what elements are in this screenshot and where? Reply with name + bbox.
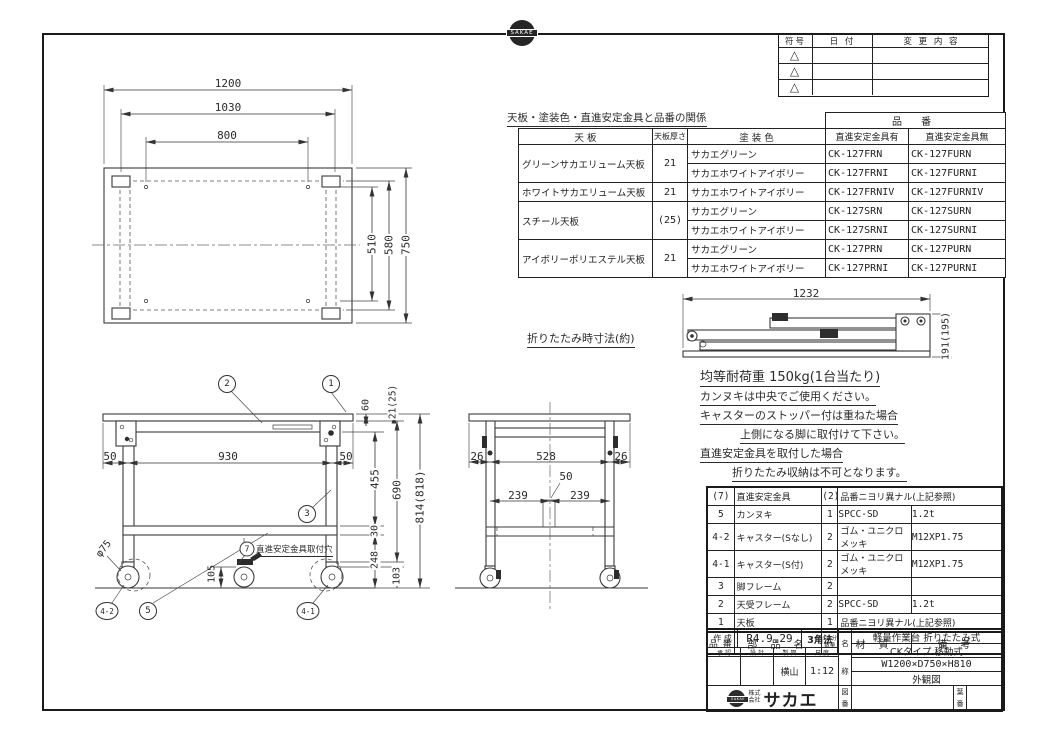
part-no: 4-2 [707,524,734,551]
spec-thickness: 21 [653,183,688,202]
spec-top-board: ホワイトサカエリューム天板 [519,183,653,202]
draft-header: 製 図 [774,648,806,657]
part-remarks: M12XP1.75 [911,524,1002,551]
part-material: ゴム・ユニクロメッキ [838,524,911,551]
spec-part-with: CK-127PRN [826,240,909,259]
drawing-type: 外観図 [852,672,1001,686]
spec-part-without: CK-127PURNI [909,259,1006,278]
revision-mark-2: △ [790,65,801,77]
dim-plan-hole-span: 800 [217,129,237,142]
sakae-logo-stamp: SAKAE [506,20,538,47]
revision-mark-3: △ [790,81,801,93]
plan-view [92,85,412,323]
spec-top-board: アイボリーポリエステル天板 [519,240,653,278]
note-line-5: 折りたたみ収納は不可となります。 [732,464,907,482]
spec-part-number-header: 品 番 [826,113,1006,129]
revision-col-symbol: 符号 [779,34,813,47]
part-remarks: 1.2t [911,506,1002,524]
spec-part-without: CK-127FURN [909,145,1006,164]
projection-method: 3角法 [802,630,839,648]
product-name-line2: CKタイプ 移動式 [852,644,1001,658]
dim-plan-overall-width: 1200 [215,77,242,90]
part-name: 脚フレーム [734,578,822,596]
company-prefix: 株式 会社 [748,691,760,704]
balloon-4-2: 4-2 [96,602,119,620]
part-remarks: M12XP1.75 [911,551,1002,578]
balloon-7: 7 [240,542,255,557]
product-name-line1: 軽量作業台 折りたたみ式 [852,630,1001,644]
part-qty: 2 [822,524,838,551]
spec-thickness: 21 [653,145,688,183]
dim-folded-height: 191(195) [941,311,952,361]
balloon-7-label: 直進安定金具取付穴 [256,543,333,557]
folded-view [683,294,952,357]
dim-side-right-offset: 26 [614,450,627,463]
part-no: (7) [707,487,734,506]
part-no: 2 [707,596,734,614]
company-name: サカエ [764,686,818,710]
dim-front-leg-clear: 455 [369,468,382,490]
part-qty: (2) [822,487,838,506]
part-qty: 2 [822,596,838,614]
spec-col-without: 直進安定金具無 [909,129,1006,145]
dim-side-leg-span: 528 [536,450,556,463]
spec-col-top: 天 板 [519,129,653,145]
name-label-top: 名 [841,640,849,648]
dim-front-left-offset: 50 [103,450,116,463]
dim-front-stabilizer-h: 105 [207,565,218,583]
spec-table: 品 番 天 板 天板厚さ 塗 装 色 直進安定金具有 直進安定金具無 グリーンサ… [518,112,1006,278]
spec-color: サカエホワイトアイボリー [688,164,826,183]
dim-front-top-thickness: 21(25) [388,384,399,420]
company-logo-band: SAKAE [726,696,749,703]
dim-side-left-half: 239 [508,489,528,502]
spec-color: サカエグリーン [688,240,826,259]
balloon-4-1: 4-1 [297,602,320,620]
spec-color: サカエグリーン [688,145,826,164]
part-material: ゴム・ユニクロメッキ [838,551,911,578]
front-view [95,391,430,603]
company-logo-icon: SAKAE [728,690,745,707]
revision-mark-1: △ [790,49,801,61]
spec-top-board: グリーンサカエリューム天板 [519,145,653,183]
drawing-no-label-top: 図 [842,689,849,696]
drawing-no-label: 図 番 [839,686,852,710]
note-line-2: キャスターのストッパー付は重ねた場合 [700,407,898,425]
part-remarks [911,578,1002,596]
spec-part-without: CK-127FURNI [909,164,1006,183]
spec-part-without: CK-127FURNIV [909,183,1006,202]
dim-side-right-half: 239 [570,489,590,502]
company-logo-cell: SAKAE 株式 会社 サカエ [708,686,839,710]
part-name: キャスター(S付) [734,551,822,578]
spec-thickness: (25) [653,202,688,240]
revision-col-date: 日 付 [813,34,873,47]
dim-front-top-frame: 60 [361,398,372,412]
part-name: 直進安定金具 [734,487,822,506]
part-qty: 2 [822,551,838,578]
company-prefix-2: 会社 [748,698,760,705]
name-label-bottom: 称 [841,668,849,676]
part-material [838,578,911,596]
approve-value [708,657,741,686]
dim-side-center-width: 50 [559,470,572,483]
part-no: 4-1 [707,551,734,578]
spec-part-with: CK-127FRNIV [826,183,909,202]
spec-col-color: 塗 装 色 [688,129,826,145]
dim-plan-overall-depth: 750 [400,234,413,256]
spec-part-with: CK-127SRN [826,202,909,221]
spec-color: サカエホワイトアイボリー [688,221,826,240]
spec-part-with: CK-127SRNI [826,221,909,240]
part-no: 5 [707,506,734,524]
dim-plan-leg-span: 1030 [215,101,242,114]
part-no: 3 [707,578,734,596]
dim-plan-leg-depth: 580 [383,234,396,256]
spec-color: サカエホワイトアイボリー [688,183,826,202]
sheet-no-label: 葉 番 [954,686,967,710]
scale-header: 尺 度 [806,648,839,657]
part-name: カンヌキ [734,506,822,524]
dim-front-right-offset: 50 [339,450,352,463]
logo-band-text: SAKAE [506,29,538,37]
dim-plan-hole-depth: 510 [366,233,379,255]
spec-col-with: 直進安定金具有 [826,129,909,145]
product-size: W1200×D750×H810 [852,658,1001,672]
spec-part-without: CK-127PURN [909,240,1006,259]
scale-value: 1:12 [806,657,839,686]
drawing-sheet: SAKAE 符号 日 付 変 更 内 容 △ △ △ 天板・塗装色・直進安定金具… [0,0,1038,734]
spec-part-with: CK-127PRNI [826,259,909,278]
part-remarks: 1.2t [911,596,1002,614]
sheet-no-value [967,686,1001,710]
part-material: SPCC-SD [838,596,911,614]
dim-front-rail: 30 [370,524,381,538]
spec-color: サカエホワイトアイボリー [688,259,826,278]
balloon-1: 1 [322,375,340,393]
dim-folded-width: 1232 [793,287,820,300]
part-qty: 2 [822,578,838,596]
spec-part-without: CK-127SURNI [909,221,1006,240]
spec-part-without: CK-127SURN [909,202,1006,221]
note-line-3: 上側になる脚に取付けて下さい。 [740,426,905,444]
title-block: 作 成 R4.9.29 3角法 承 認 設 計 製 図 尺 度 横山 1:12 … [706,628,1003,712]
drawing-no-value [852,686,954,710]
spec-thickness: 21 [653,240,688,278]
dim-front-lower: 248 [370,550,381,570]
created-date: R4.9.29 [738,630,802,648]
note-line-1: カンヌキは中央でご使用ください。 [700,388,876,406]
design-value [741,657,774,686]
balloon-5: 5 [139,602,157,620]
revision-col-change: 変 更 内 容 [873,34,990,47]
note-line-4: 直進安定金具を取付した場合 [700,445,843,463]
balloon-3: 3 [298,505,316,523]
approve-header: 承 認 [708,648,741,657]
spec-color: サカエグリーン [688,202,826,221]
part-material: 品番ニヨリ異ナル(上記参照) [838,487,1002,506]
sheet-no-label-bottom: 番 [957,701,964,708]
drafter-name: 横山 [774,657,806,686]
part-name: 天受フレーム [734,596,822,614]
spec-col-thickness: 天板厚さ [653,129,688,145]
name-label: 名 称 [839,630,852,686]
dim-front-under-top: 690 [391,479,404,501]
folded-view-label: 折りたたみ時寸法(約) [527,330,635,348]
part-name: キャスター(Sなし) [734,524,822,551]
dim-side-left-offset: 26 [470,450,483,463]
drawing-no-label-bottom: 番 [842,701,849,708]
part-qty: 1 [822,506,838,524]
spec-top-board: スチール天板 [519,202,653,240]
dim-front-caster-h: 103 [392,566,403,586]
dim-front-total-height: 814(818) [414,470,427,525]
design-header: 設 計 [741,648,774,657]
part-material: SPCC-SD [838,506,911,524]
sheet-no-label-top: 葉 [957,689,964,696]
spec-part-with: CK-127FRN [826,145,909,164]
note-load-rating: 均等耐荷重 150kg(1台当たり) [700,366,880,387]
created-label: 作 成 [708,630,738,648]
revision-table: 符号 日 付 変 更 内 容 △ △ △ [778,33,989,97]
spec-part-with: CK-127FRNI [826,164,909,183]
side-view [455,402,648,610]
dim-front-caster-span: 930 [218,450,238,463]
balloon-2: 2 [218,375,236,393]
